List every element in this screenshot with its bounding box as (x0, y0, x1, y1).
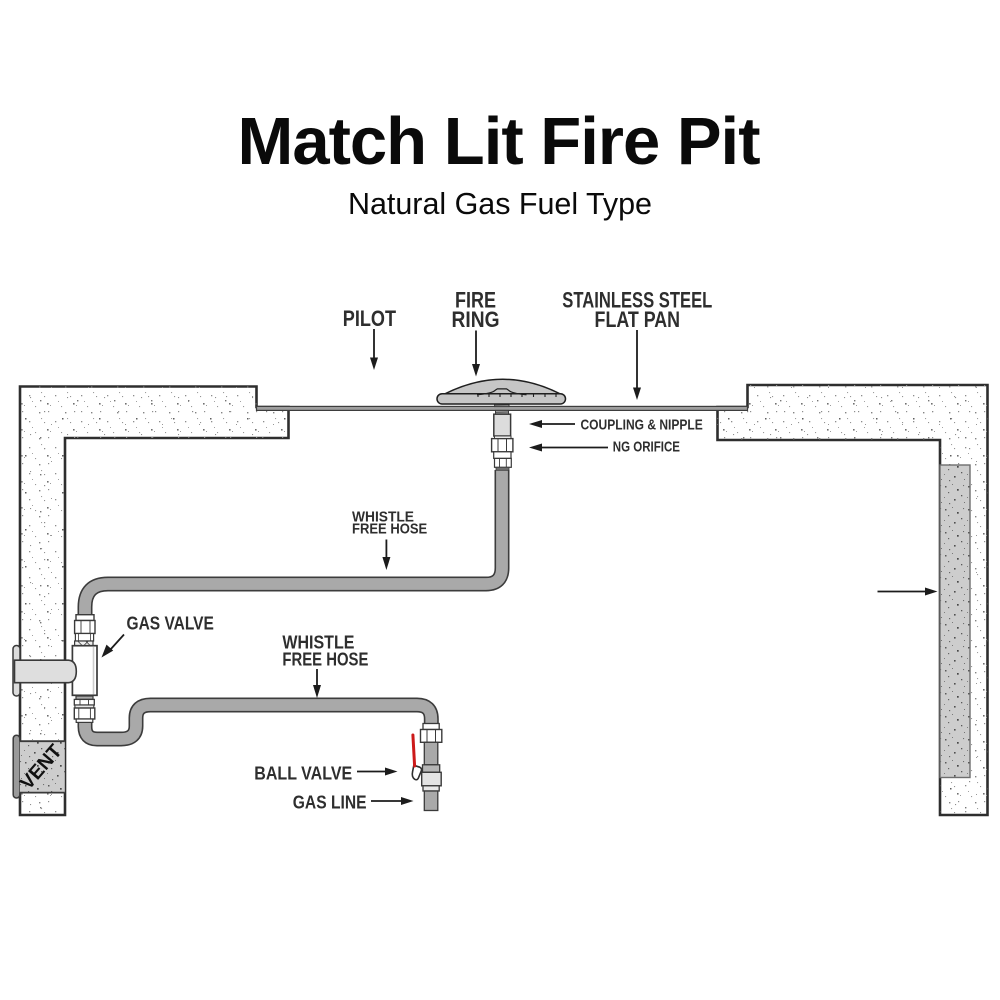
svg-text:NG ORIFICE: NG ORIFICE (613, 439, 680, 456)
svg-text:Natural Gas Fuel Type: Natural Gas Fuel Type (348, 187, 652, 221)
svg-text:GAS LINE: GAS LINE (293, 792, 367, 812)
svg-text:Match Lit Fire Pit: Match Lit Fire Pit (238, 104, 761, 179)
svg-text:PILOT: PILOT (343, 306, 397, 331)
svg-text:FLAT PAN: FLAT PAN (595, 307, 681, 332)
svg-text:FREE HOSE: FREE HOSE (282, 650, 368, 670)
svg-text:RING: RING (452, 307, 500, 332)
svg-text:COUPLING & NIPPLE: COUPLING & NIPPLE (581, 416, 703, 433)
svg-text:BALL VALVE: BALL VALVE (254, 763, 352, 783)
svg-text:FREE HOSE: FREE HOSE (352, 521, 427, 538)
svg-text:GAS VALVE: GAS VALVE (127, 613, 214, 633)
